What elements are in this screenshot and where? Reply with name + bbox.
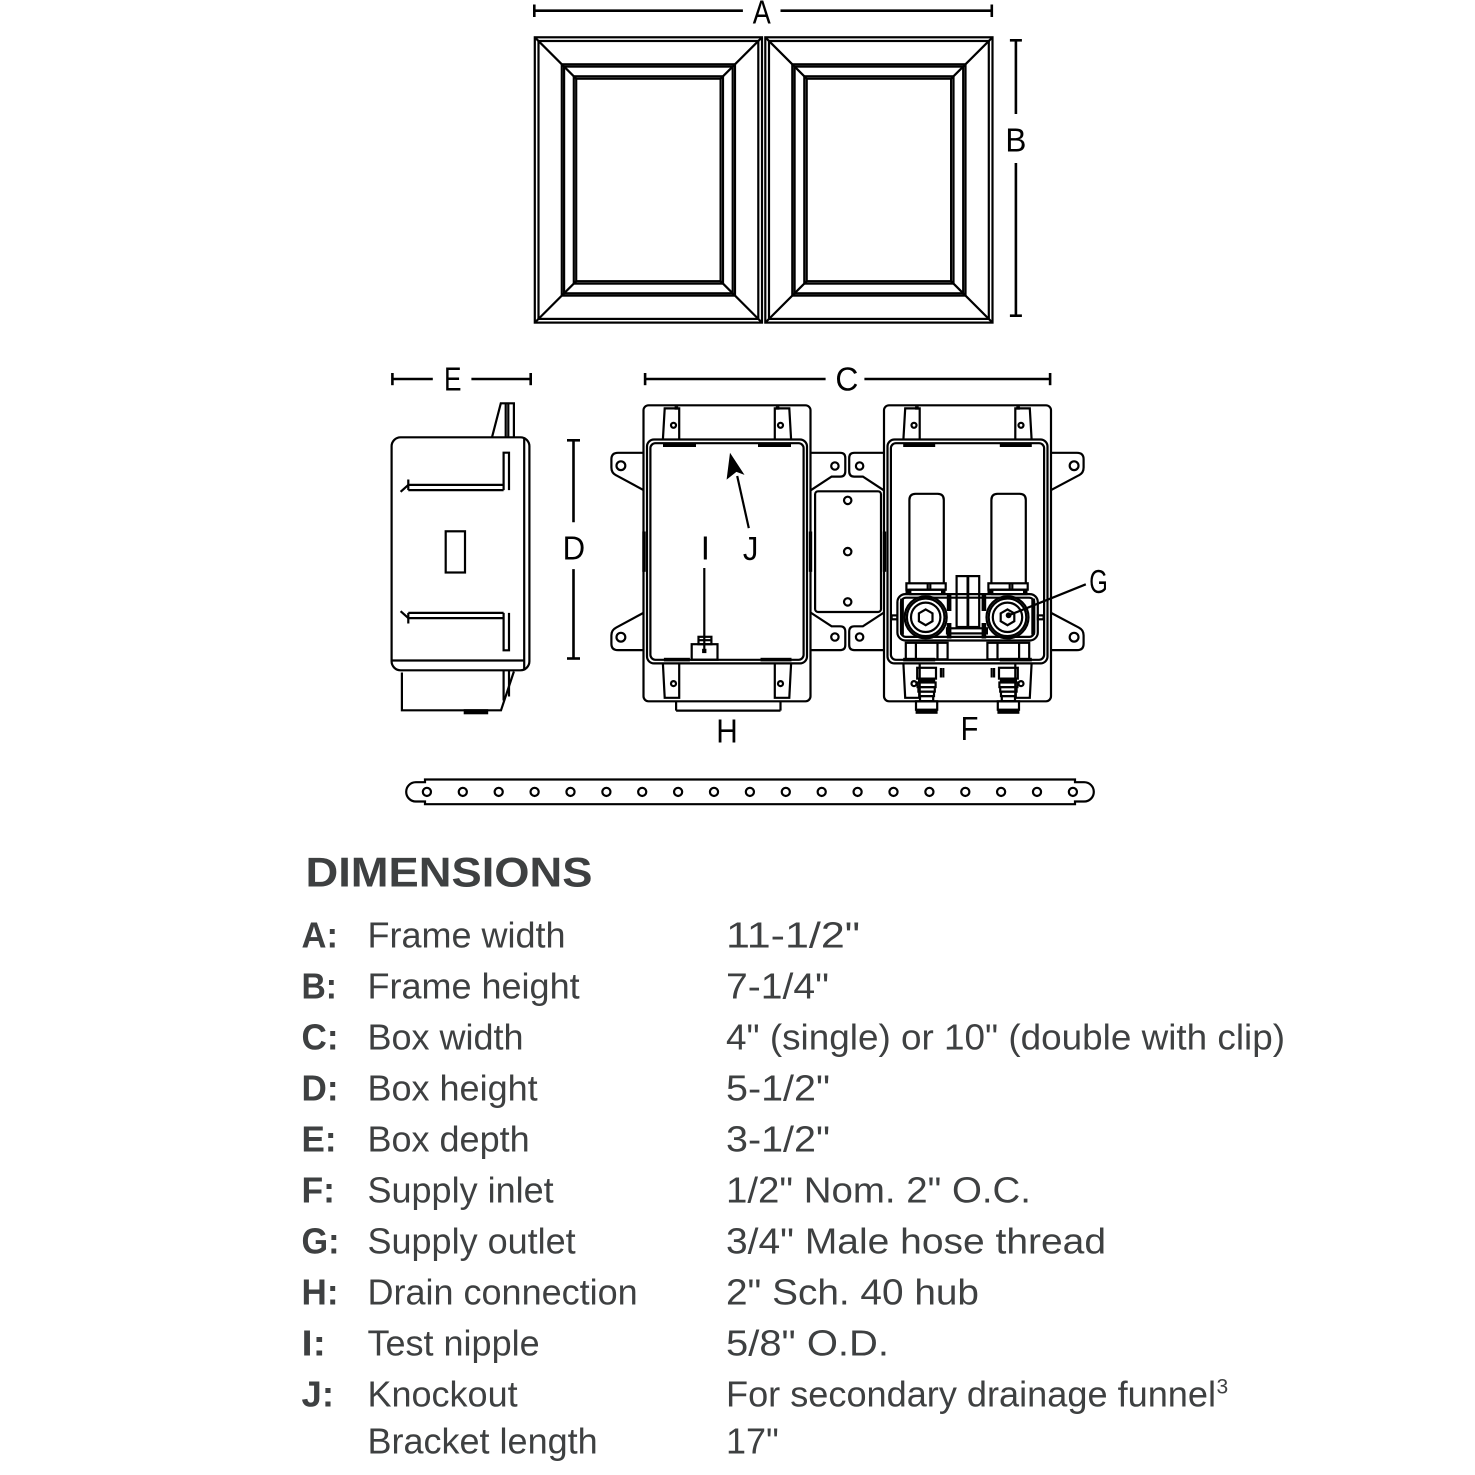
svg-text:A: A xyxy=(753,0,771,31)
svg-text:D:: D: xyxy=(302,1068,339,1109)
svg-text:E: E xyxy=(444,361,462,398)
svg-text:DIMENSIONS: DIMENSIONS xyxy=(306,849,593,896)
svg-text:Knockout: Knockout xyxy=(368,1374,518,1415)
svg-text:4" (single) or 10" (double wit: 4" (single) or 10" (double with clip) xyxy=(726,1017,1285,1058)
svg-text:Frame height: Frame height xyxy=(368,966,580,1007)
svg-text:Supply inlet: Supply inlet xyxy=(368,1170,554,1211)
svg-text:B: B xyxy=(1005,122,1026,159)
svg-text:17": 17" xyxy=(726,1421,779,1462)
svg-text:E:: E: xyxy=(302,1119,337,1160)
svg-text:B:: B: xyxy=(302,966,338,1007)
svg-text:3/4" Male hose thread: 3/4" Male hose thread xyxy=(726,1221,1106,1262)
svg-text:Supply outlet: Supply outlet xyxy=(368,1221,576,1262)
svg-text:5/8" O.D.: 5/8" O.D. xyxy=(726,1323,889,1364)
svg-text:F:: F: xyxy=(302,1170,336,1211)
svg-text:5-1/2": 5-1/2" xyxy=(726,1068,830,1109)
svg-text:J:: J: xyxy=(302,1374,335,1415)
svg-text:11-1/2": 11-1/2" xyxy=(726,915,860,956)
svg-text:C: C xyxy=(835,360,858,397)
svg-text:D: D xyxy=(563,529,586,566)
svg-text:C:: C: xyxy=(302,1017,339,1058)
svg-text:G:: G: xyxy=(302,1221,340,1262)
svg-text:F: F xyxy=(961,710,979,747)
svg-text:H: H xyxy=(716,712,738,749)
svg-text:Drain connection: Drain connection xyxy=(368,1272,638,1313)
svg-text:G: G xyxy=(1089,563,1108,600)
svg-text:A:: A: xyxy=(302,915,339,956)
svg-text:3: 3 xyxy=(1217,1376,1229,1399)
svg-text:Box depth: Box depth xyxy=(368,1119,530,1160)
svg-text:Bracket length: Bracket length xyxy=(368,1421,598,1462)
svg-text:J: J xyxy=(743,530,759,567)
svg-text:H:: H: xyxy=(302,1272,339,1313)
svg-text:3-1/2": 3-1/2" xyxy=(726,1119,830,1160)
svg-text:Box height: Box height xyxy=(368,1068,538,1109)
svg-text:7-1/4": 7-1/4" xyxy=(726,966,829,1007)
svg-text:2" Sch. 40 hub: 2" Sch. 40 hub xyxy=(726,1272,979,1313)
svg-text:Test nipple: Test nipple xyxy=(368,1323,540,1364)
svg-text:Frame width: Frame width xyxy=(368,915,566,956)
svg-text:Box width: Box width xyxy=(368,1017,524,1058)
svg-text:1/2" Nom. 2" O.C.: 1/2" Nom. 2" O.C. xyxy=(726,1170,1031,1211)
svg-text:I: I xyxy=(701,529,710,566)
svg-text:For secondary drainage funnel: For secondary drainage funnel xyxy=(726,1374,1216,1415)
svg-text:I:: I: xyxy=(302,1323,327,1364)
